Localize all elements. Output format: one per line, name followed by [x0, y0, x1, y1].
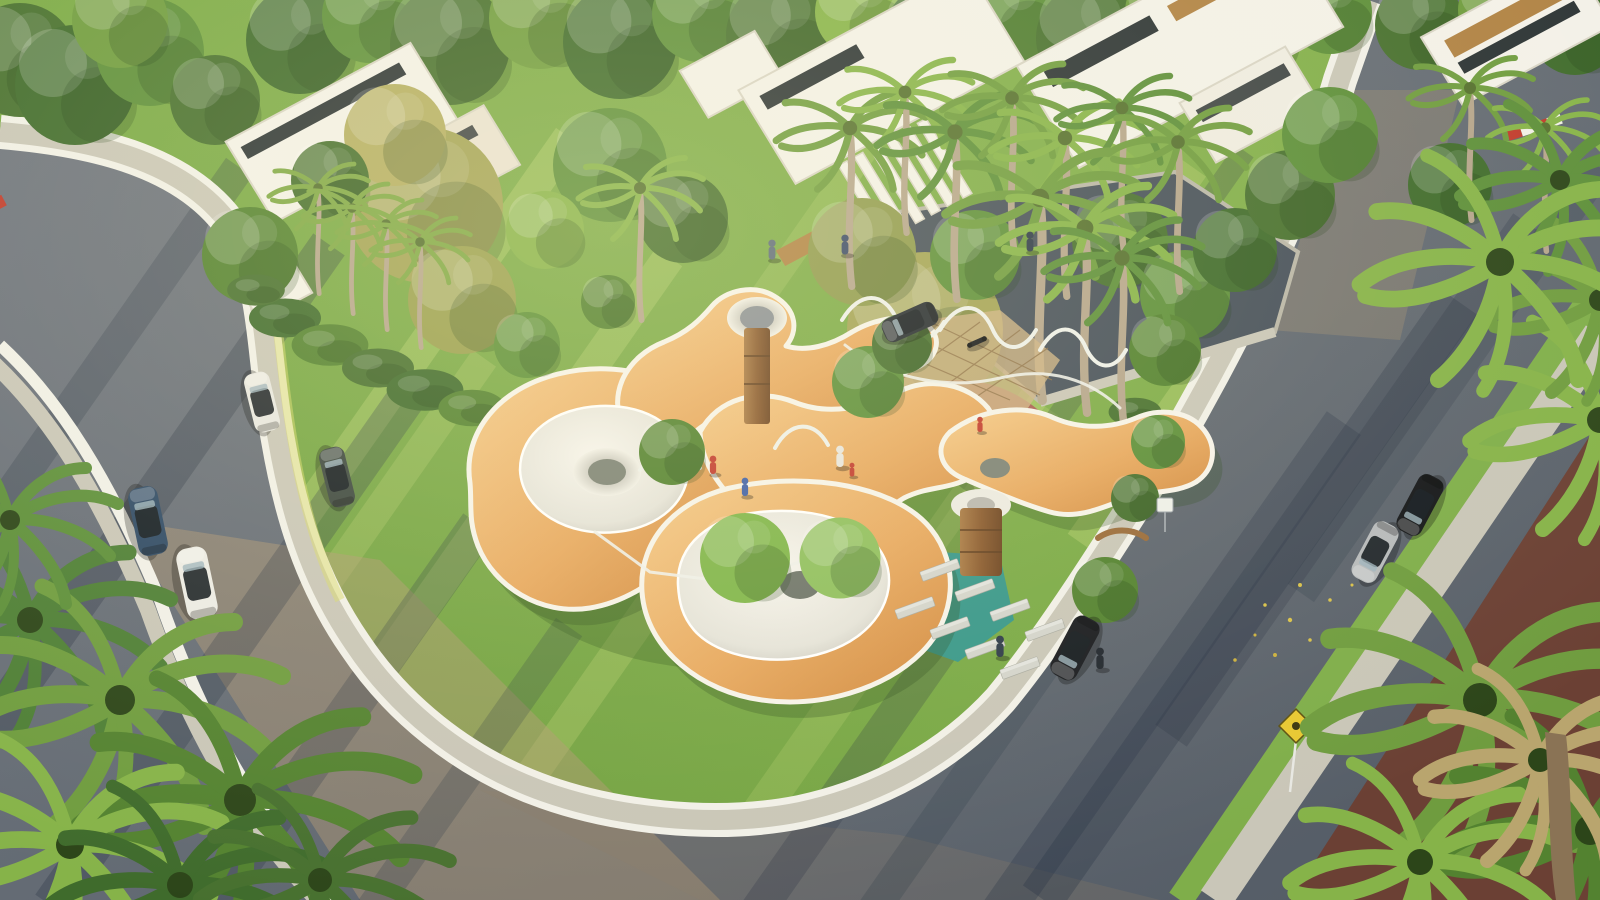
rendered-scene — [0, 0, 1600, 900]
sun-glow-overlay — [0, 0, 1600, 900]
scene-canvas — [0, 0, 1600, 900]
